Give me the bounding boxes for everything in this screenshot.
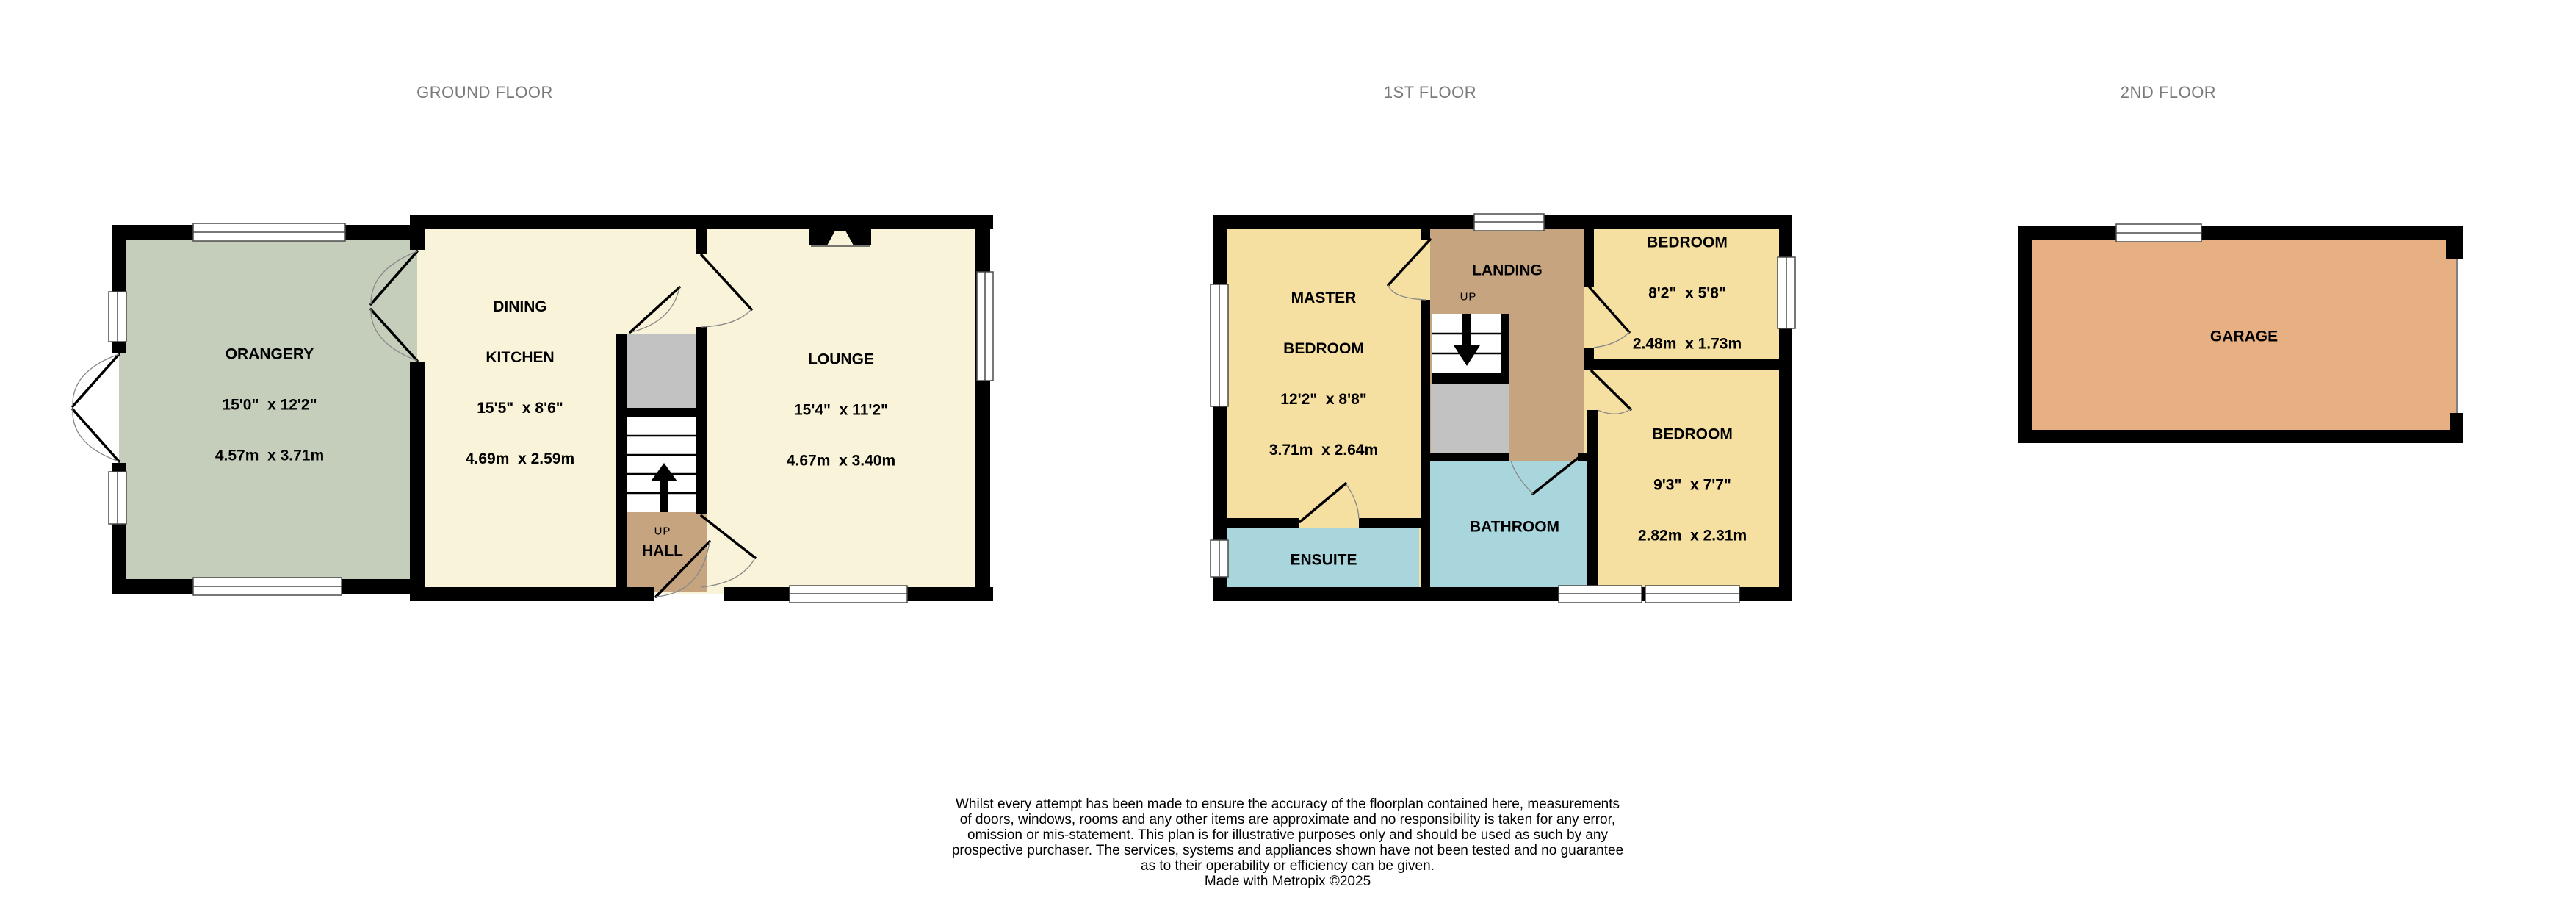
room-name: GARAGE: [2210, 328, 2278, 345]
room-dims-imperial: 15'4" x 11'2": [787, 402, 895, 419]
disclaimer-line: as to their operability or efficiency ca…: [952, 858, 1623, 874]
room-dims-metric: 3.71m x 2.64m: [1269, 442, 1378, 459]
room-name-line2: BEDROOM: [1269, 340, 1378, 357]
room-dims-imperial: 8'2" x 5'8": [1633, 285, 1742, 302]
room-dims-imperial: 12'2" x 8'8": [1269, 391, 1378, 408]
room-dims-metric: 4.57m x 3.71m: [215, 448, 324, 464]
disclaimer-line: prospective purchaser. The services, sys…: [952, 843, 1623, 858]
room-name: BEDROOM: [1638, 426, 1747, 443]
room-name-line1: DINING: [466, 298, 574, 315]
room-dims-metric: 2.82m x 2.31m: [1638, 528, 1747, 545]
room-label-bedroom-1: BEDROOM 8'2" x 5'8" 2.48m x 1.73m: [1633, 201, 1742, 387]
disclaimer-line: of doors, windows, rooms and any other i…: [952, 812, 1623, 827]
room-dims-metric: 4.69m x 2.59m: [466, 450, 574, 467]
room-name: BEDROOM: [1633, 234, 1742, 251]
room-label-ensuite: ENSUITE: [1290, 518, 1357, 603]
room-name-line2: KITCHEN: [466, 349, 574, 366]
room-label-orangery: ORANGERY 15'0" x 12'2" 4.57m x 3.71m: [215, 312, 324, 498]
room-dims-imperial: 9'3" x 7'7": [1638, 477, 1747, 494]
room-name: LOUNGE: [787, 351, 895, 368]
room-label-bedroom-2: BEDROOM 9'3" x 7'7" 2.82m x 2.31m: [1638, 392, 1747, 578]
made-with-credit: Made with Metropix ©2025: [952, 874, 1623, 889]
room-name: LANDING: [1472, 262, 1543, 279]
disclaimer: Whilst every attempt has been made to en…: [952, 797, 1623, 889]
disclaimer-line: Whilst every attempt has been made to en…: [952, 797, 1623, 812]
room-label-landing: LANDING: [1472, 229, 1543, 313]
first-cupboard: [1431, 384, 1509, 453]
floorplan-page: GROUND FLOOR 1ST FLOOR 2ND FLOOR ORANGER…: [0, 0, 2576, 920]
disclaimer-line: omission or mis-statement. This plan is …: [952, 827, 1623, 843]
floor-title-first: 1ST FLOOR: [1384, 83, 1476, 102]
room-dims-metric: 2.48m x 1.73m: [1633, 336, 1742, 353]
ground-cupboard: [627, 334, 696, 408]
room-label-bathroom: BATHROOM: [1470, 485, 1559, 569]
room-name: HALL: [642, 543, 683, 560]
room-label-garage: GARAGE: [2210, 295, 2278, 379]
floor-title-ground: GROUND FLOOR: [416, 83, 553, 102]
room-label-lounge: LOUNGE 15'4" x 11'2" 4.67m x 3.40m: [787, 317, 895, 503]
room-name: ENSUITE: [1290, 552, 1357, 569]
room-label-master-bedroom: MASTER BEDROOM 12'2" x 8'8" 3.71m x 2.64…: [1269, 256, 1378, 492]
room-dims-metric: 4.67m x 3.40m: [787, 453, 895, 470]
room-name-line1: MASTER: [1269, 290, 1378, 306]
stairs-up-label-first: UP: [1460, 291, 1477, 303]
floor-title-second: 2ND FLOOR: [2121, 83, 2216, 102]
garage-door-line: [2456, 259, 2458, 413]
room-dims-imperial: 15'5" x 8'6": [466, 400, 574, 417]
room-name: ORANGERY: [215, 346, 324, 363]
room-dims-imperial: 15'0" x 12'2": [215, 397, 324, 414]
room-label-hall: HALL: [642, 509, 683, 594]
room-label-dining-kitchen: DINING KITCHEN 15'5" x 8'6" 4.69m x 2.59…: [466, 265, 574, 501]
room-name: BATHROOM: [1470, 519, 1559, 536]
